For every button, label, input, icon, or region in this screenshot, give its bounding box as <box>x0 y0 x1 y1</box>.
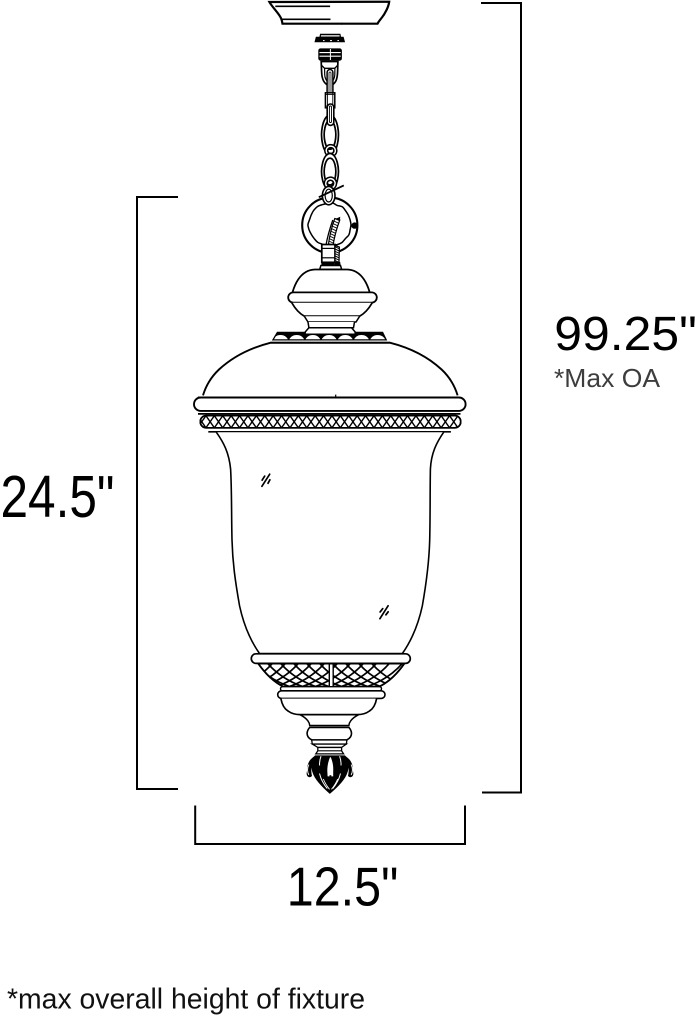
svg-text:*max overall height of fixture: *max overall height of fixture <box>7 983 365 1015</box>
svg-text:*Max OA: *Max OA <box>554 363 661 393</box>
svg-text:12.5": 12.5" <box>287 856 399 918</box>
svg-text:99.25": 99.25" <box>554 307 695 361</box>
svg-text:24.5": 24.5" <box>1 464 115 530</box>
